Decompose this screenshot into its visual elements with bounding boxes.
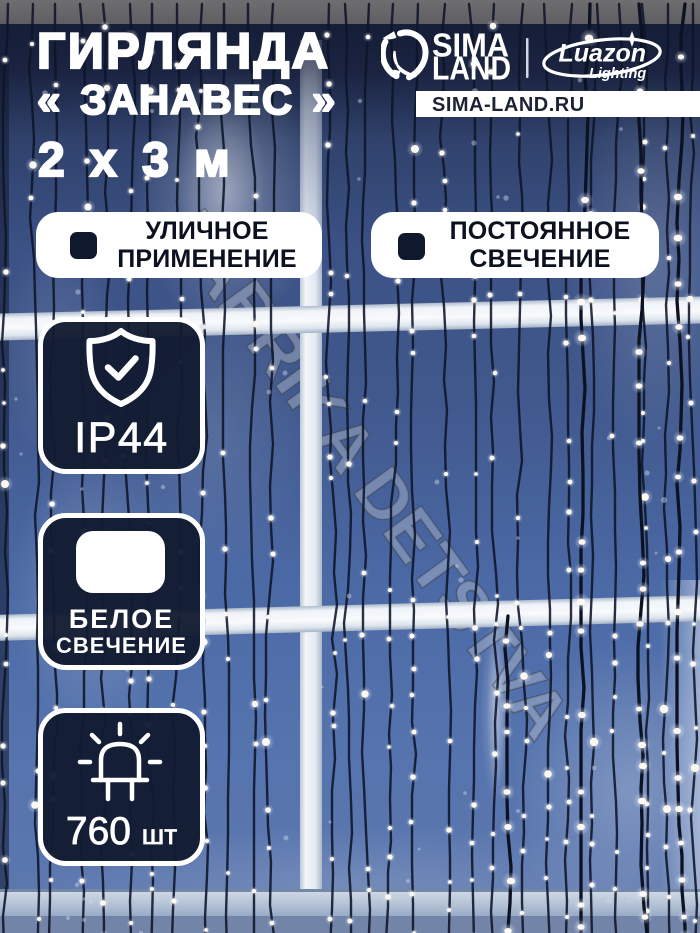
svg-text:LAND: LAND — [432, 50, 511, 82]
svg-text:Lighting: Lighting — [589, 66, 646, 82]
